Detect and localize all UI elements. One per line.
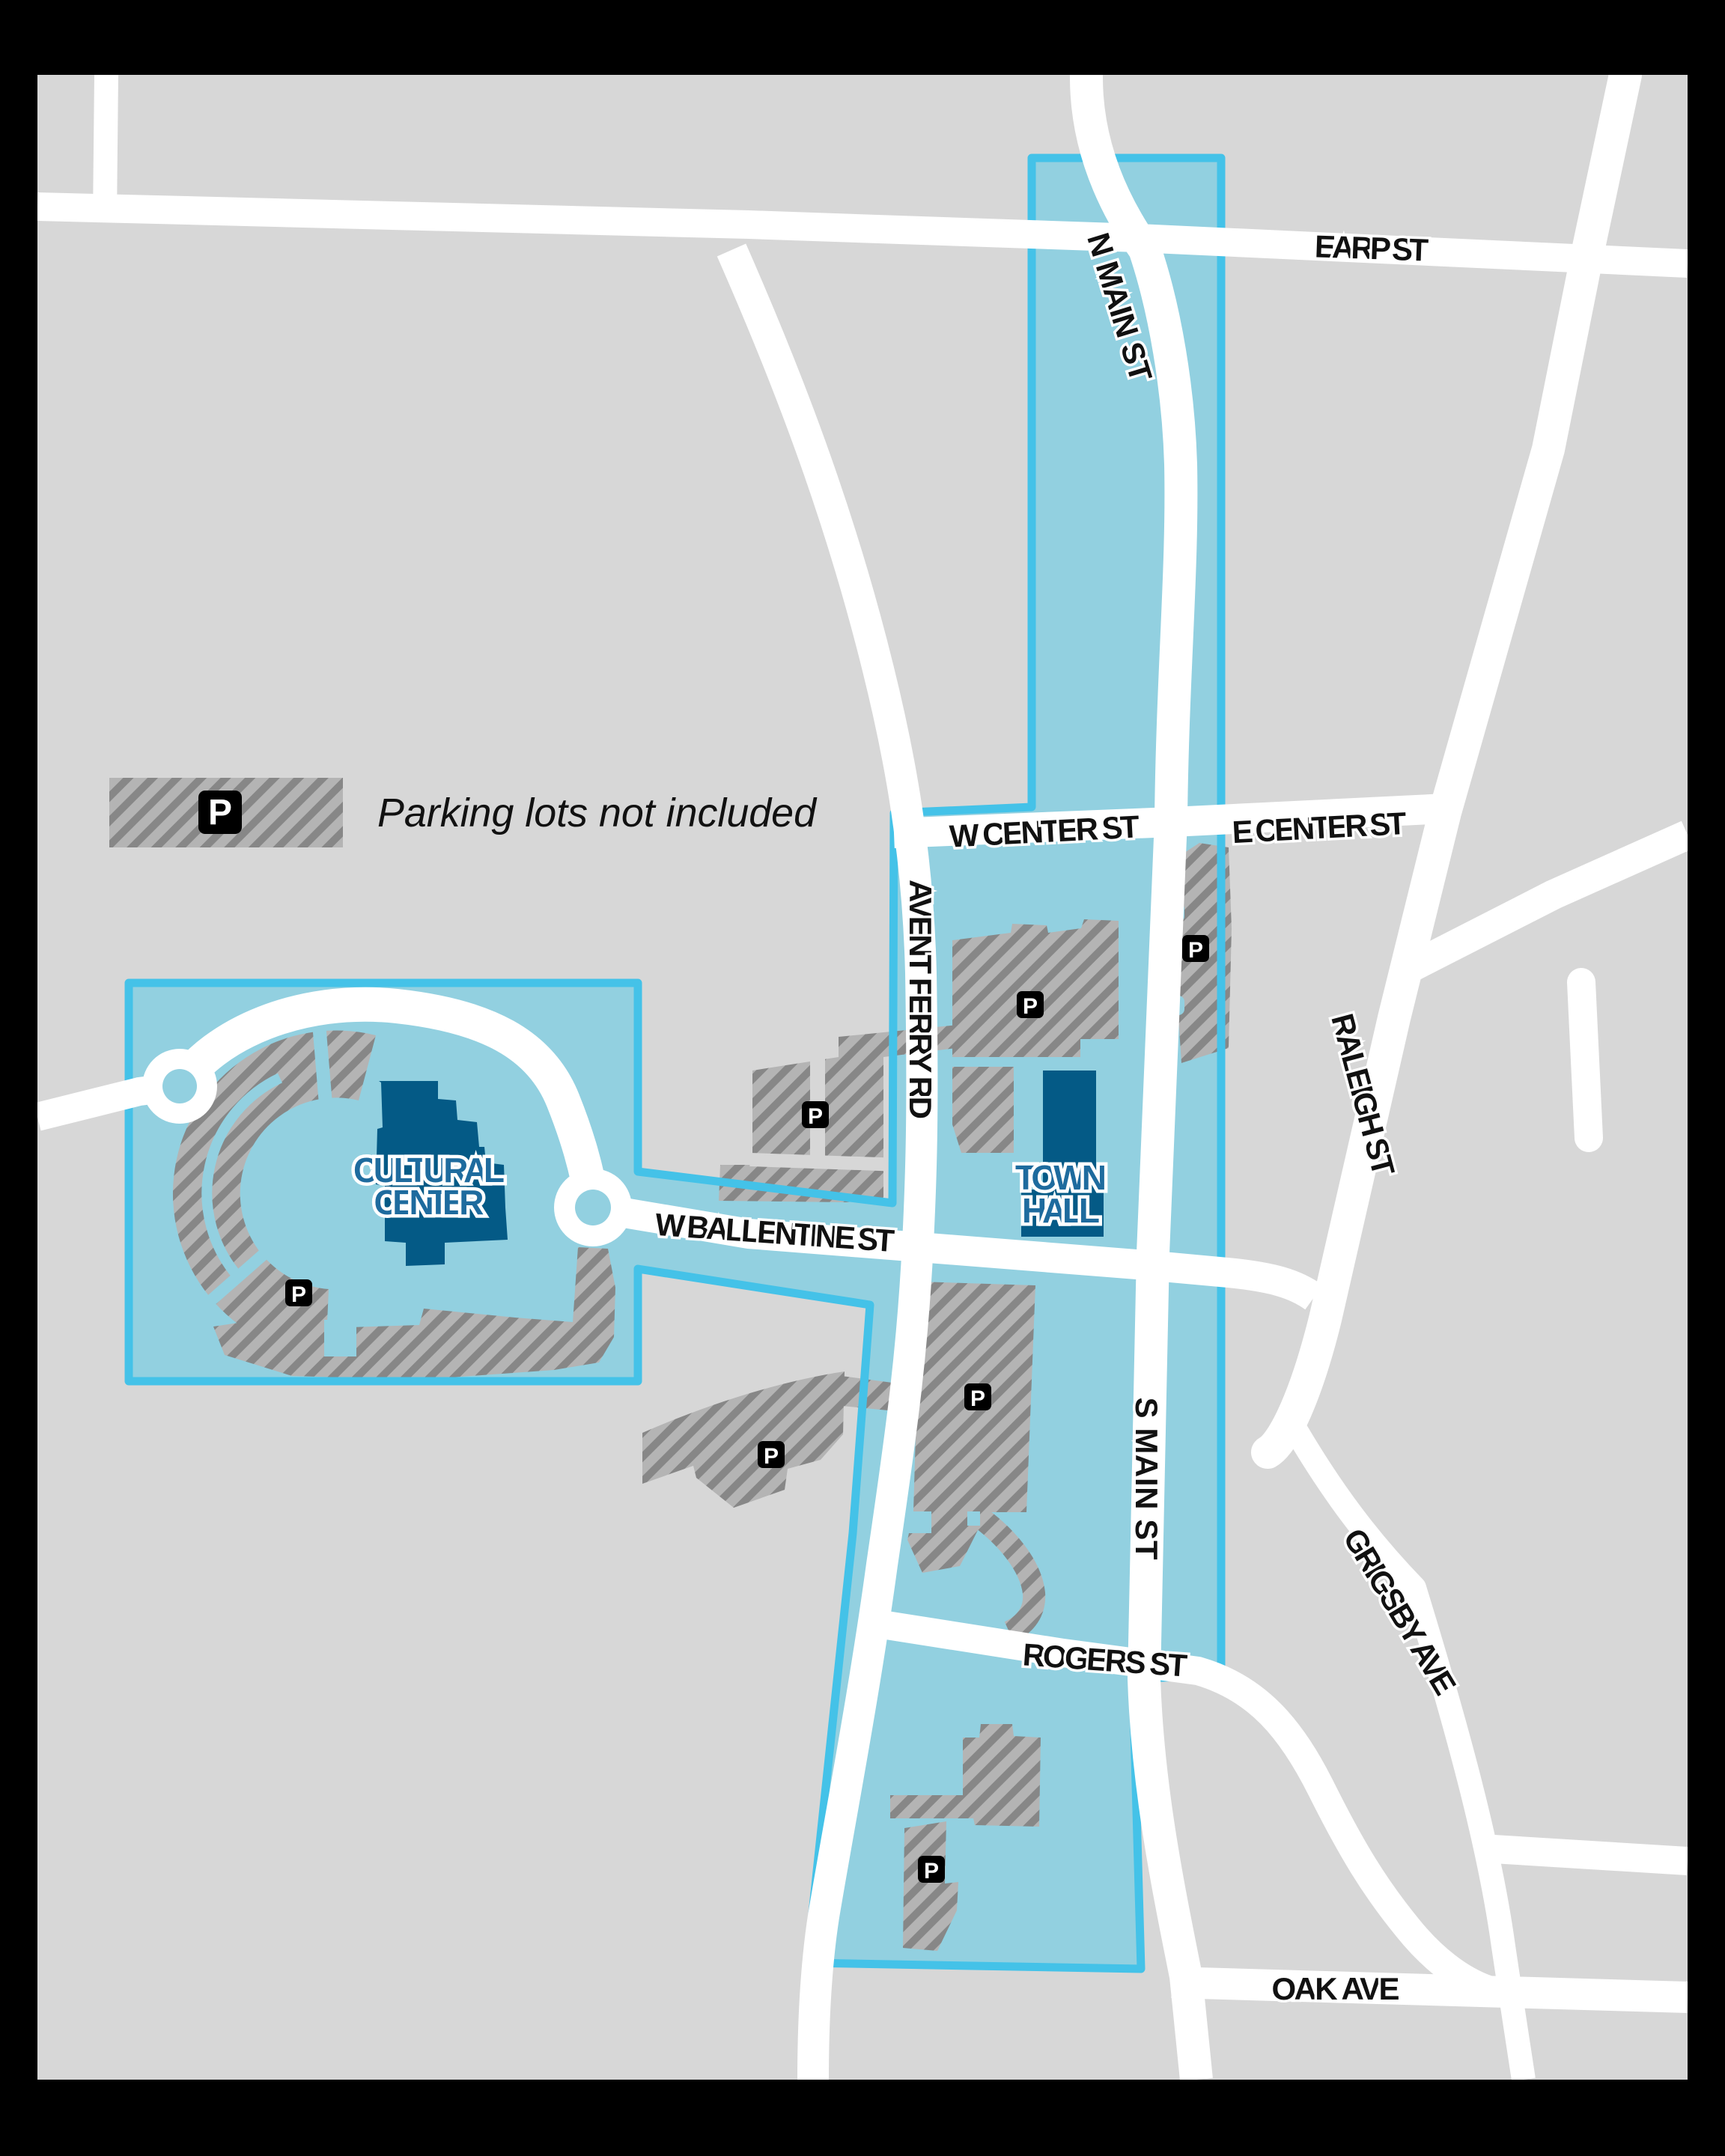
svg-text:P: P: [970, 1386, 985, 1411]
svg-text:P: P: [208, 793, 232, 832]
svg-text:S MAIN ST: S MAIN ST: [1129, 1398, 1164, 1560]
svg-text:P: P: [1188, 938, 1203, 963]
svg-text:OAK AVE: OAK AVE: [1272, 1971, 1400, 2006]
svg-text:EARP ST: EARP ST: [1314, 228, 1429, 267]
svg-text:P: P: [808, 1104, 823, 1129]
svg-text:CENTER: CENTER: [374, 1183, 484, 1222]
svg-text:P: P: [764, 1444, 779, 1469]
svg-text:P: P: [291, 1282, 306, 1307]
svg-text:P: P: [924, 1859, 939, 1884]
svg-text:AVENT FERRY RD: AVENT FERRY RD: [903, 880, 938, 1119]
svg-text:Parking lots not included: Parking lots not included: [377, 791, 818, 835]
svg-text:HALL: HALL: [1022, 1191, 1100, 1230]
svg-text:P: P: [1023, 994, 1038, 1019]
